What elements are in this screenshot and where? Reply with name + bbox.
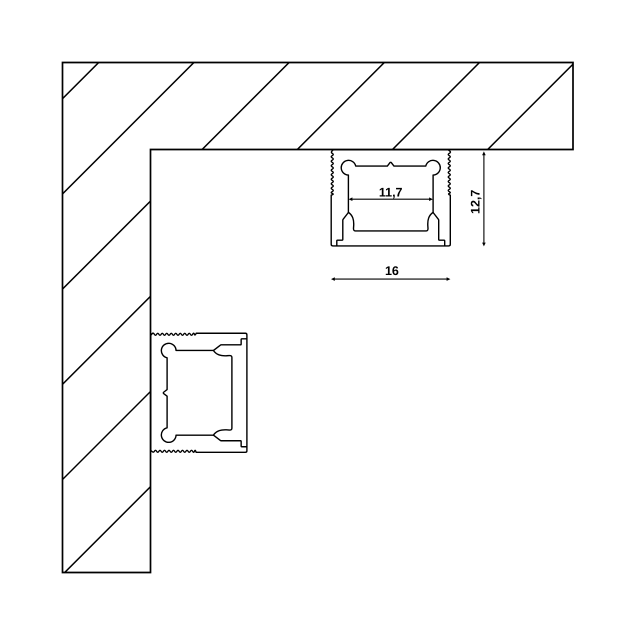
svg-text:12,7: 12,7 bbox=[468, 190, 482, 214]
svg-text:11,7: 11,7 bbox=[379, 186, 403, 200]
svg-text:16: 16 bbox=[385, 264, 399, 278]
